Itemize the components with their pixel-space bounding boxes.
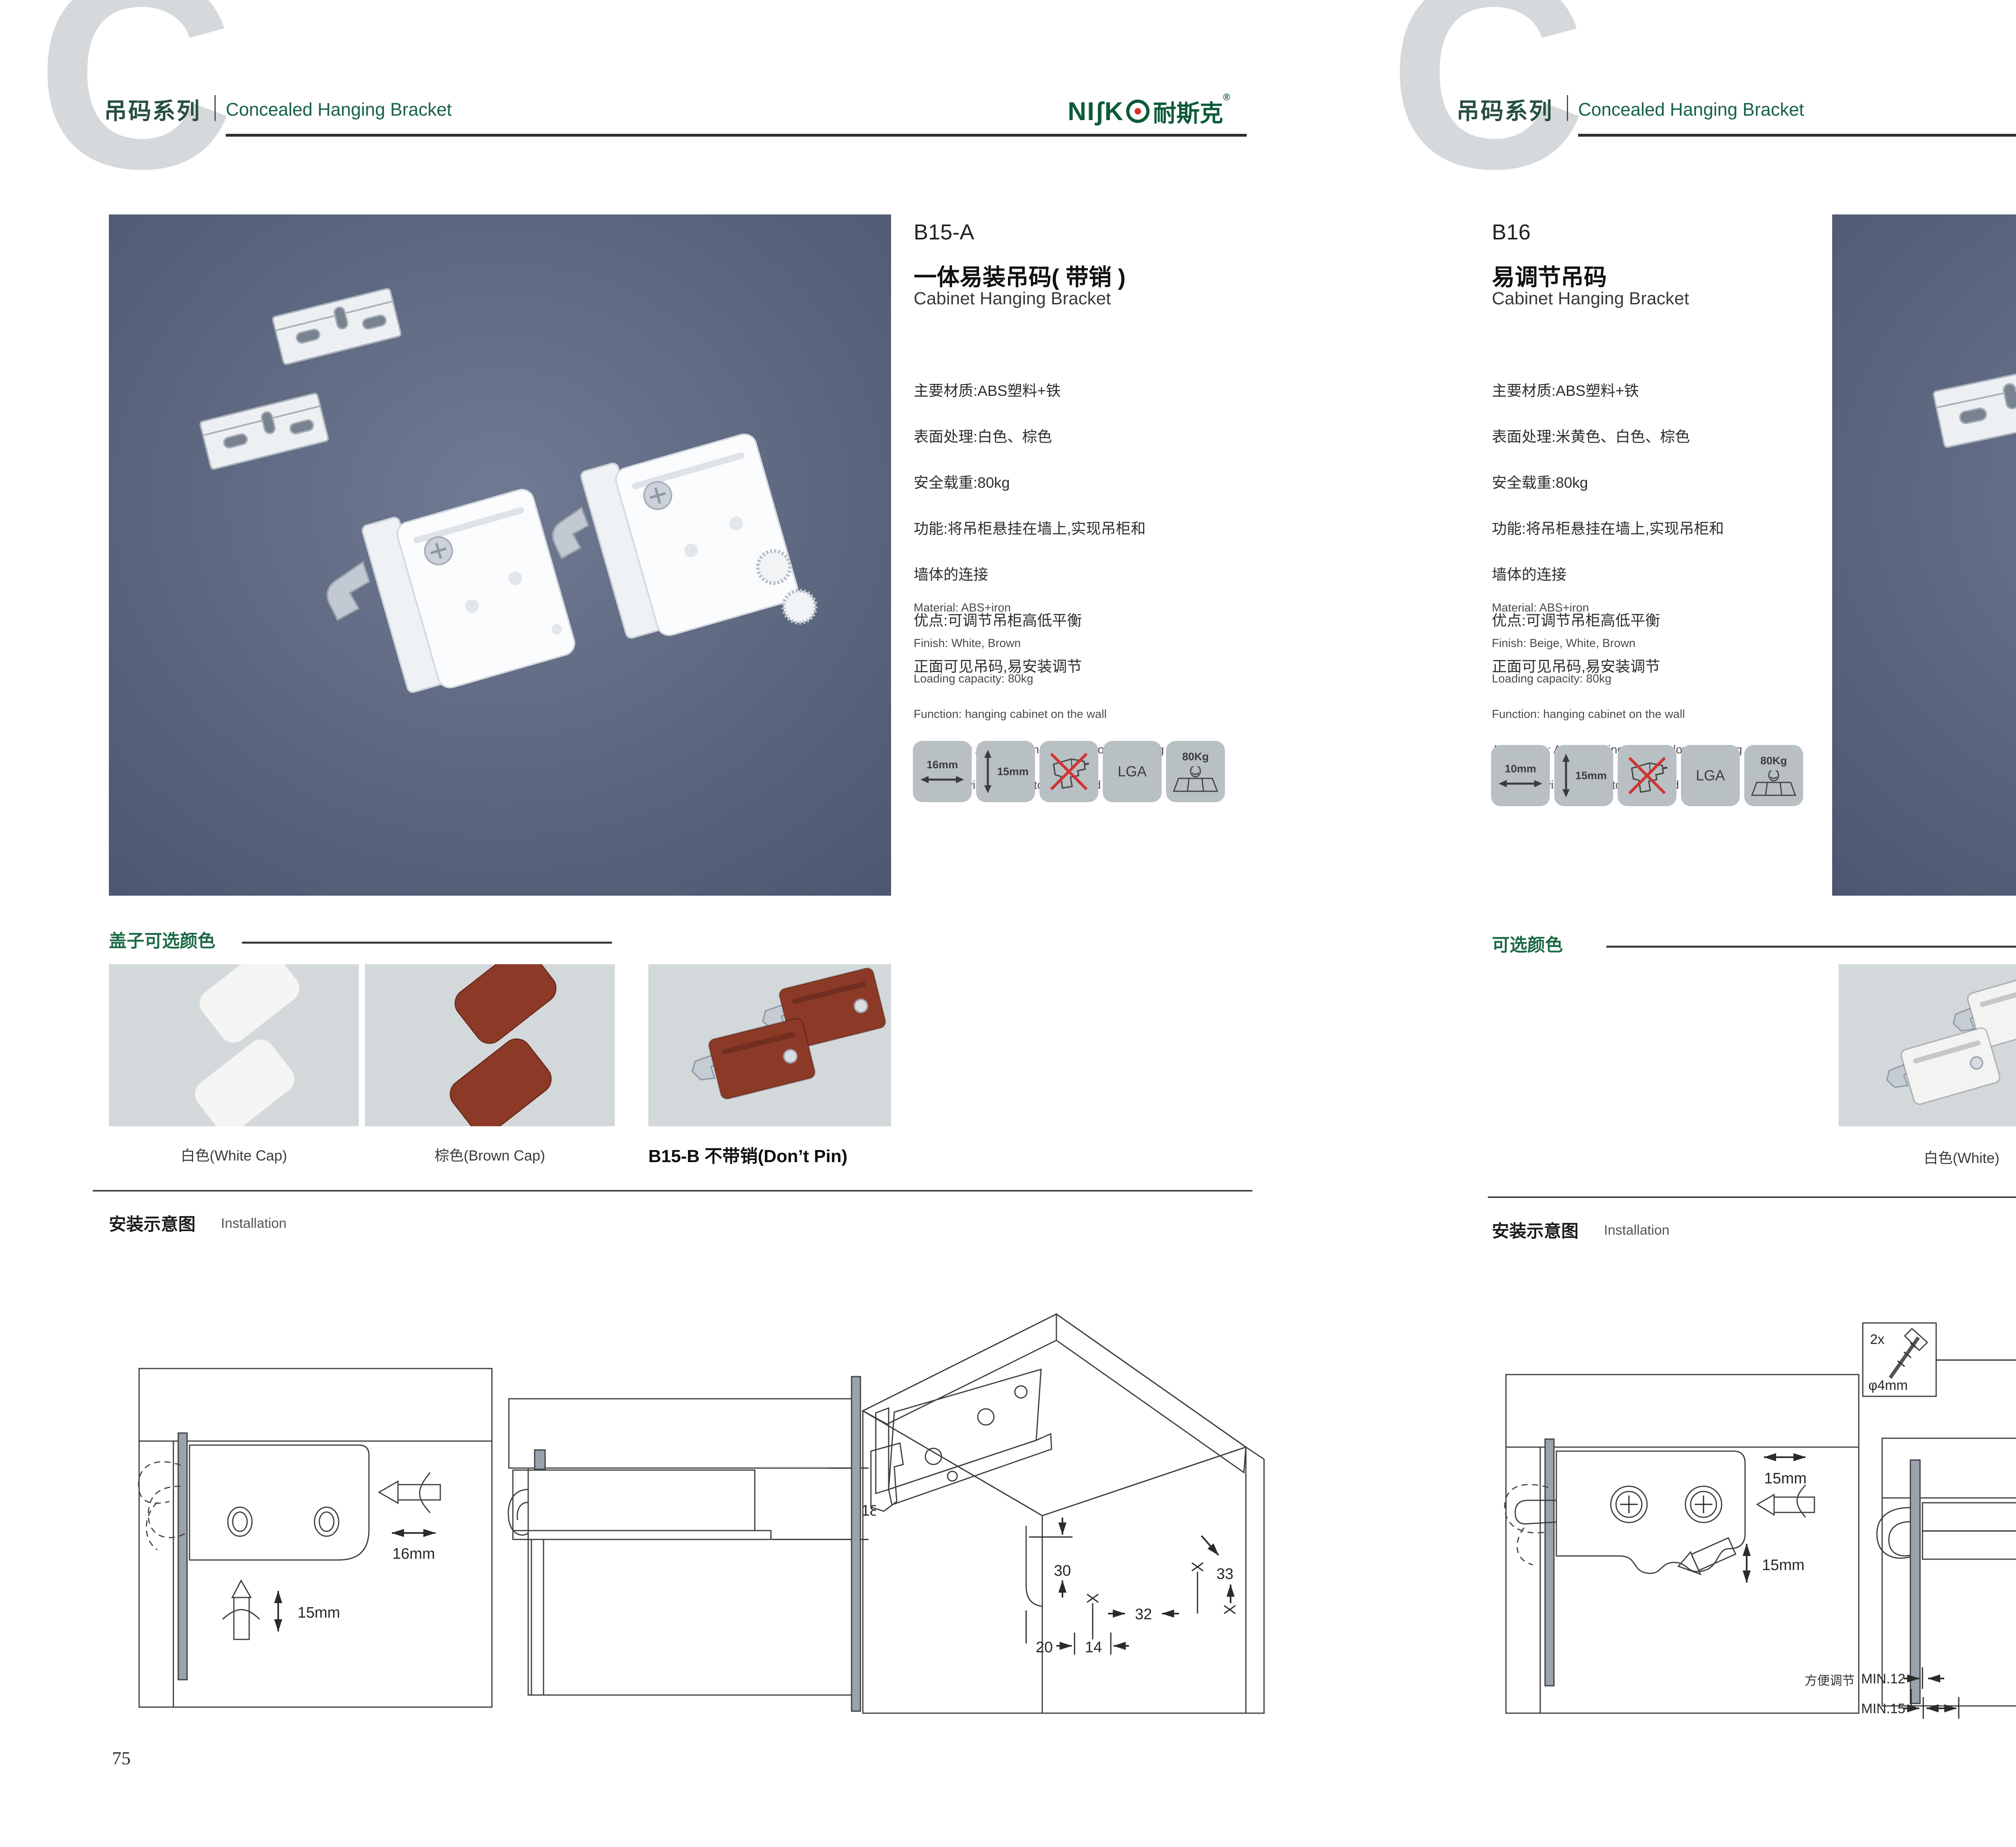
dim-33: 33 bbox=[1216, 1566, 1233, 1583]
cabinet-load-icon bbox=[1749, 770, 1798, 797]
width-dimension-icon: 10mm bbox=[1491, 745, 1550, 806]
section-divider bbox=[93, 1190, 1252, 1192]
page-75: C 吊码系列 Concealed Hanging Bracket NIʃK 耐斯… bbox=[0, 0, 1352, 1847]
product-model: B15-A bbox=[914, 220, 974, 245]
installation-title-en: Installation bbox=[221, 1216, 287, 1231]
install-diagram-section: 18 bbox=[505, 1312, 876, 1715]
product-name-cn: 易调节吊码 bbox=[1492, 259, 1607, 292]
height-dimension-icon: 15mm bbox=[976, 741, 1035, 802]
install-diagram-side: 16mm 15mm bbox=[133, 1312, 504, 1715]
header-divider bbox=[1567, 95, 1568, 121]
series-title-cn: 吊码系列 bbox=[1456, 93, 1553, 126]
install-diagram-3d: 33 30 32 20 14 bbox=[847, 1276, 1270, 1719]
bracket-swatch bbox=[1880, 1027, 2001, 1111]
installation-title-en: Installation bbox=[1604, 1223, 1670, 1238]
icon-label: 16mm bbox=[927, 759, 958, 771]
header-divider bbox=[215, 95, 216, 121]
nisko-logo: NIʃK 耐斯克 ® bbox=[1068, 94, 1230, 128]
product-photo-art bbox=[1832, 214, 2016, 896]
dim-v-15mm: 15mm bbox=[1762, 1557, 1805, 1574]
variant-b15b-label: B15-B 不带销(Don’t Pin) bbox=[648, 1142, 848, 1167]
page-76: C 吊码系列 Concealed Hanging Bracket NIʃK 耐斯… bbox=[1352, 0, 2016, 1847]
lga-cert-icon: LGA bbox=[1103, 741, 1162, 802]
b15b-art bbox=[648, 964, 891, 1126]
installation-title-cn: 安装示意图 bbox=[109, 1211, 196, 1235]
variant-b15b-photo bbox=[648, 964, 891, 1126]
series-title-en: Concealed Hanging Bracket bbox=[1578, 99, 1804, 120]
logo-cn: 耐斯克 bbox=[1153, 94, 1223, 128]
swatch-label: 白色(White) bbox=[1839, 1146, 2016, 1167]
product-name-cn: 一体易装吊码( 带销 ) bbox=[914, 259, 1126, 292]
feature-icons: 16mm 15mm LGA 80Kg bbox=[913, 741, 1225, 802]
dim-32: 32 bbox=[1135, 1606, 1152, 1623]
spec-line: 主要材质:ABS塑料+铁 bbox=[914, 379, 1146, 402]
logo-text: NIʃK bbox=[1068, 96, 1124, 126]
icon-label: 80Kg bbox=[1182, 751, 1209, 763]
color-swatch-white-cap bbox=[109, 964, 359, 1126]
spec-line: Finish: Beige, White, Brown bbox=[1492, 634, 1742, 652]
spec-line: 表面处理:米黄色、白色、棕色 bbox=[1492, 425, 1724, 448]
screwdriver-bit bbox=[1675, 1536, 1737, 1581]
series-title-cn: 吊码系列 bbox=[104, 93, 201, 126]
icon-label: 80Kg bbox=[1760, 755, 1787, 767]
colors-title: 可选颜色 bbox=[1492, 930, 1563, 956]
feature-icons: 10mm 15mm LGA 80Kg bbox=[1491, 745, 1803, 806]
drill-crossed-icon bbox=[1045, 748, 1092, 795]
no-drill-icon bbox=[1618, 745, 1677, 806]
color-swatch-brown-cap bbox=[365, 964, 615, 1126]
lga-cert-icon: LGA bbox=[1681, 745, 1740, 806]
catalog-spread: C 吊码系列 Concealed Hanging Bracket NIʃK 耐斯… bbox=[0, 0, 2016, 1847]
install-diagram-side: 15mm 15mm 方便调节 bbox=[1500, 1318, 1871, 1721]
spec-line: 功能:将吊柜悬挂在墙上,实现吊柜和 bbox=[914, 517, 1146, 540]
dim-min15: MIN.15 bbox=[1861, 1701, 1906, 1716]
v-arrow-icon bbox=[983, 749, 993, 794]
logo-o-icon bbox=[1126, 100, 1150, 123]
brown-bracket bbox=[686, 1017, 816, 1105]
screw-diameter: φ4mm bbox=[1868, 1378, 1908, 1393]
screw-qty: 2x bbox=[1870, 1332, 1885, 1347]
product-photo-art bbox=[109, 214, 891, 896]
page-number: 75 bbox=[112, 1747, 131, 1769]
h-arrow-icon bbox=[920, 774, 965, 785]
header-rule bbox=[1578, 134, 2016, 137]
icon-label: 10mm bbox=[1505, 763, 1536, 775]
h-arrow-icon bbox=[1498, 778, 1543, 789]
section-rule bbox=[242, 942, 612, 944]
height-dimension-icon: 15mm bbox=[1554, 745, 1613, 806]
bracket-art bbox=[1839, 964, 2016, 1126]
series-title-en: Concealed Hanging Bracket bbox=[226, 99, 452, 120]
spec-line: Material: ABS+iron bbox=[914, 599, 1164, 617]
dim-30: 30 bbox=[1054, 1562, 1071, 1579]
dim-14: 14 bbox=[1085, 1639, 1102, 1656]
cap-art bbox=[365, 964, 615, 1126]
spec-line: 安全载重:80kg bbox=[1492, 471, 1724, 494]
no-drill-icon bbox=[1039, 741, 1098, 802]
width-dimension-icon: 16mm bbox=[913, 741, 972, 802]
installation-title-cn: 安装示意图 bbox=[1492, 1217, 1579, 1242]
spec-line: 功能:将吊柜悬挂在墙上,实现吊柜和 bbox=[1492, 517, 1724, 540]
dim-15mm: 15mm bbox=[298, 1604, 340, 1621]
product-name-en: Cabinet Hanging Bracket bbox=[914, 289, 1111, 309]
product-photo-b16 bbox=[1832, 214, 2016, 896]
dim-16mm: 16mm bbox=[392, 1545, 435, 1562]
spec-line: Material: ABS+iron bbox=[1492, 599, 1742, 617]
cap-colors-title: 盖子可选颜色 bbox=[109, 926, 215, 952]
spec-line: Loading capacity: 80kg bbox=[1492, 670, 1742, 688]
product-photo-b15a bbox=[109, 214, 891, 896]
product-model: B16 bbox=[1492, 220, 1531, 245]
install-diagram-section: 2x φ4mm 19 MIN.12 MIN.15 bbox=[1859, 1318, 2016, 1725]
registered-mark: ® bbox=[1223, 92, 1231, 103]
icon-label: 15mm bbox=[997, 765, 1029, 778]
product-name-en: Cabinet Hanging Bracket bbox=[1492, 289, 1689, 309]
header-rule bbox=[226, 134, 1247, 137]
note-easy-adjust: 方便调节 bbox=[1805, 1674, 1855, 1688]
load-capacity-icon: 80Kg bbox=[1744, 745, 1803, 806]
spec-line: Function: hanging cabinet on the wall bbox=[914, 705, 1164, 723]
v-arrow-icon bbox=[1561, 753, 1571, 798]
load-capacity-icon: 80Kg bbox=[1166, 741, 1225, 802]
spec-line: Loading capacity: 80kg bbox=[914, 670, 1164, 688]
cap-art bbox=[109, 964, 359, 1126]
icon-label: LGA bbox=[1696, 767, 1725, 784]
color-swatch-white bbox=[1839, 964, 2016, 1126]
dim-min12: MIN.12 bbox=[1861, 1671, 1906, 1687]
swatch-label: 白色(White Cap) bbox=[109, 1144, 359, 1165]
icon-label: LGA bbox=[1118, 763, 1147, 780]
spec-line: 主要材质:ABS塑料+铁 bbox=[1492, 379, 1724, 402]
section-rule bbox=[1606, 946, 2016, 948]
spec-line: 表面处理:白色、棕色 bbox=[914, 425, 1146, 448]
section-divider bbox=[1488, 1196, 2016, 1198]
spec-line: Finish: White, Brown bbox=[914, 634, 1164, 652]
cabinet-load-icon bbox=[1171, 766, 1220, 793]
drill-crossed-icon bbox=[1624, 752, 1670, 799]
spec-line: 安全载重:80kg bbox=[914, 471, 1146, 494]
swatch-label: 棕色(Brown Cap) bbox=[365, 1144, 615, 1165]
spec-line: Function: hanging cabinet on the wall bbox=[1492, 705, 1742, 723]
icon-label: 15mm bbox=[1575, 770, 1607, 782]
dim-h-15mm: 15mm bbox=[1764, 1470, 1807, 1487]
dim-20: 20 bbox=[1036, 1639, 1053, 1656]
